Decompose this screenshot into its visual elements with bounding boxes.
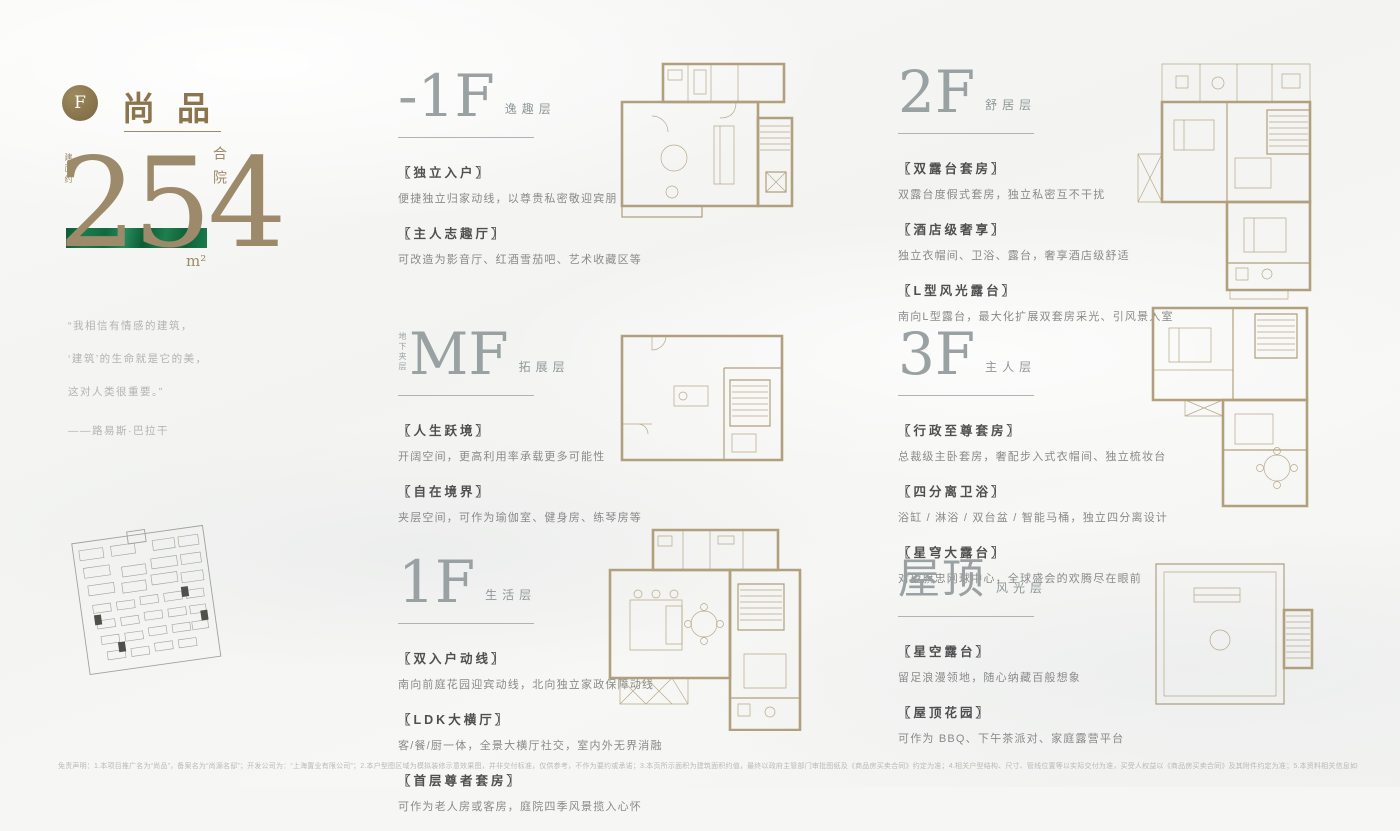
floor-label: -1F bbox=[398, 70, 495, 123]
area-figure: 254 bbox=[58, 142, 283, 266]
format-badge: F bbox=[62, 85, 98, 121]
site-plan bbox=[56, 516, 236, 681]
floor-label: 1F bbox=[398, 556, 475, 609]
floor-side-label: 地下夹层 bbox=[397, 332, 408, 372]
disclaimer-text: 免责声明：1.本项目推广名为“尚品”，备案名为“尚源名邸”；开发公司为：“上海置… bbox=[58, 761, 1358, 771]
floorplan-3f bbox=[1135, 300, 1320, 515]
format-badge-letter: F bbox=[74, 93, 86, 113]
floor-sublabel: 拓展层 bbox=[519, 358, 570, 375]
floorplan-roof bbox=[1142, 552, 1317, 717]
floorplan-minus-1f bbox=[608, 58, 798, 218]
floorplan-2f bbox=[1132, 58, 1322, 303]
floor-label: 3F bbox=[898, 328, 975, 381]
floor-label: 屋顶 bbox=[898, 556, 986, 602]
floorplan-1f bbox=[598, 526, 803, 731]
section-divider bbox=[898, 133, 1034, 134]
quote-line: ‘建筑’的生命就是它的美， bbox=[68, 351, 208, 366]
feature-title: 〖自在境界〗 bbox=[398, 481, 698, 500]
quote: “我相信有情感的建筑， ‘建筑’的生命就是它的美， 这对人类很重要。” ——路易… bbox=[68, 318, 208, 456]
feature-desc: 可作为老人房或客房，庭院四季风景揽入心怀 bbox=[398, 798, 698, 814]
quote-author: ——路易斯·巴拉干 bbox=[68, 423, 208, 438]
floor-sublabel: 逸趣层 bbox=[505, 100, 556, 117]
page-title: 尚品 bbox=[122, 82, 232, 130]
section-divider bbox=[398, 395, 534, 396]
area-unit: m² bbox=[186, 252, 206, 270]
floor-sublabel: 生活层 bbox=[485, 586, 536, 603]
section-divider bbox=[898, 395, 1034, 396]
feature-title: 〖主人志趣厅〗 bbox=[398, 223, 698, 242]
feature-desc: 可改造为影音厅、红酒雪茄吧、艺术收藏区等 bbox=[398, 251, 698, 267]
quote-line: “我相信有情感的建筑， bbox=[68, 318, 208, 333]
floor-sublabel: 风光层 bbox=[996, 579, 1047, 596]
floor-sublabel: 舒居层 bbox=[985, 96, 1036, 113]
floor-sublabel: 主人层 bbox=[985, 358, 1036, 375]
section-divider bbox=[898, 616, 1034, 617]
quote-line: 这对人类很重要。” bbox=[68, 384, 208, 399]
section-divider bbox=[398, 137, 534, 138]
feature-desc: 夹层空间，可作为瑜伽室、健身房、练琴房等 bbox=[398, 509, 698, 525]
floor-label: 2F bbox=[898, 66, 975, 119]
feature-desc: 可作为 BBQ、下午茶派对、家庭露营平台 bbox=[898, 730, 1198, 746]
section-divider bbox=[398, 623, 534, 624]
feature-desc: 客/餐/厨一体，全景大横厅社交，室内外无界消融 bbox=[398, 737, 698, 753]
floorplan-mf bbox=[612, 328, 792, 468]
house-type-label: 合院 bbox=[210, 146, 230, 194]
floor-label: MF bbox=[409, 328, 509, 381]
